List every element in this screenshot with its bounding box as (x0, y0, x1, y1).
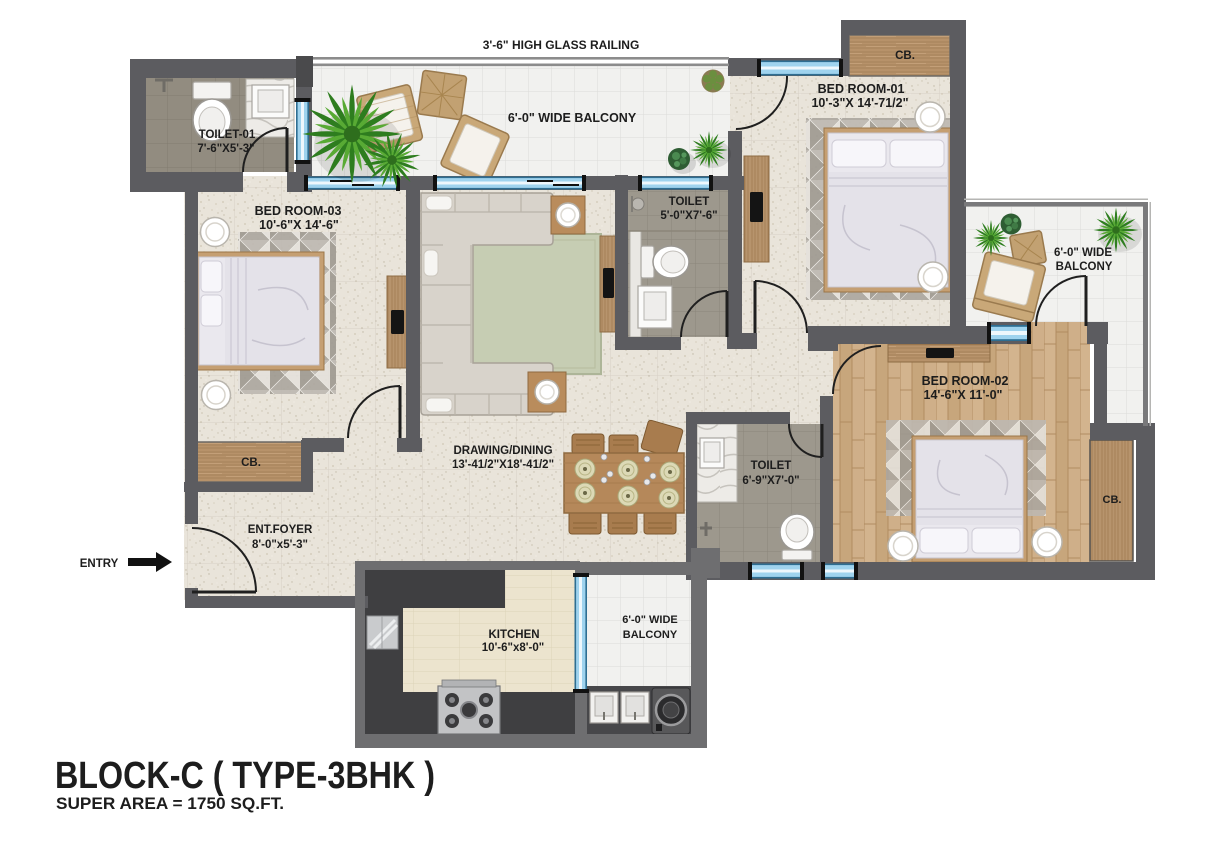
svg-text:TOILET: TOILET (751, 460, 792, 472)
svg-text:CB.: CB. (241, 457, 261, 469)
svg-text:5'-0"X7'-6": 5'-0"X7'-6" (660, 210, 717, 222)
svg-text:CB.: CB. (895, 50, 915, 62)
svg-text:8'-0"x5'-3": 8'-0"x5'-3" (252, 539, 308, 551)
svg-text:6'-0" WIDE: 6'-0" WIDE (1054, 247, 1112, 259)
svg-text:BLOCK-C ( TYPE-3BHK ): BLOCK-C ( TYPE-3BHK ) (55, 755, 435, 797)
svg-text:DRAWING/DINING: DRAWING/DINING (453, 445, 552, 457)
svg-text:10'-6"X 14'-6": 10'-6"X 14'-6" (259, 218, 339, 232)
svg-text:14'-6"X 11'-0": 14'-6"X 11'-0" (924, 388, 1003, 402)
svg-text:ENT.FOYER: ENT.FOYER (248, 524, 313, 536)
svg-text:3'-6" HIGH GLASS RAILING: 3'-6" HIGH GLASS RAILING (483, 38, 640, 52)
svg-text:10'-3"X 14'-71/2": 10'-3"X 14'-71/2" (811, 96, 908, 110)
svg-text:BALCONY: BALCONY (623, 629, 678, 641)
svg-text:BALCONY: BALCONY (1056, 261, 1113, 273)
svg-text:CB.: CB. (1103, 494, 1122, 506)
svg-text:KITCHEN: KITCHEN (488, 629, 539, 641)
svg-text:TOILET-01: TOILET-01 (199, 129, 256, 141)
svg-text:SUPER AREA = 1750 SQ.FT.: SUPER AREA = 1750 SQ.FT. (56, 794, 284, 813)
svg-text:BED ROOM-02: BED ROOM-02 (922, 374, 1009, 388)
svg-text:ENTRY: ENTRY (80, 558, 119, 570)
svg-text:13'-41/2"X18'-41/2": 13'-41/2"X18'-41/2" (452, 459, 554, 471)
svg-text:6'-9"X7'-0": 6'-9"X7'-0" (742, 475, 799, 487)
svg-text:10'-6"x8'-0": 10'-6"x8'-0" (482, 642, 544, 654)
svg-text:BED ROOM-01: BED ROOM-01 (818, 82, 905, 96)
svg-text:6'-0" WIDE: 6'-0" WIDE (622, 614, 678, 626)
svg-text:TOILET: TOILET (669, 196, 710, 208)
svg-text:7'-6"X5'-3": 7'-6"X5'-3" (197, 143, 254, 155)
svg-text:BED ROOM-03: BED ROOM-03 (255, 204, 342, 218)
svg-text:6'-0" WIDE BALCONY: 6'-0" WIDE BALCONY (508, 111, 637, 125)
